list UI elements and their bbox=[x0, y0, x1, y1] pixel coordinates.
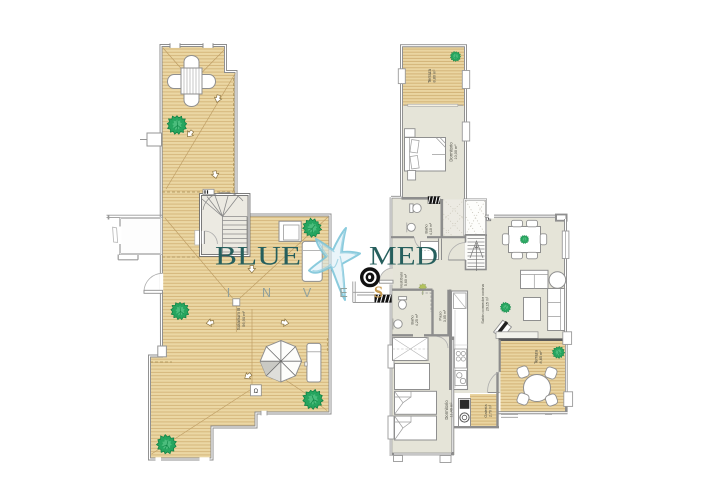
svg-text:V: V bbox=[303, 286, 312, 300]
svg-text:5,60 m²: 5,60 m² bbox=[404, 273, 408, 286]
svg-text:3,05 m²: 3,05 m² bbox=[443, 309, 447, 322]
svg-text:11,40 m²: 11,40 m² bbox=[450, 402, 454, 417]
svg-text:Ω: Ω bbox=[254, 389, 259, 395]
svg-text:29,15 m²: 29,15 m² bbox=[485, 296, 489, 311]
svg-text:Terraza: Terraza bbox=[427, 68, 432, 83]
svg-text:Salón comedor cocina: Salón comedor cocina bbox=[480, 283, 485, 323]
svg-text:4,25 m²: 4,25 m² bbox=[415, 313, 419, 326]
svg-text:8,85 m²: 8,85 m² bbox=[539, 350, 543, 364]
svg-text:Dormitorio: Dormitorio bbox=[449, 142, 454, 162]
svg-text:Dormitorio: Dormitorio bbox=[444, 400, 449, 420]
svg-text:Terraza: Terraza bbox=[534, 349, 539, 364]
svg-text:BLUE: BLUE bbox=[215, 242, 301, 271]
svg-text:56,90 m²: 56,90 m² bbox=[241, 310, 246, 326]
svg-text:8,80 m²: 8,80 m² bbox=[433, 69, 437, 83]
svg-text:Paso: Paso bbox=[438, 311, 443, 321]
svg-text:N: N bbox=[262, 286, 271, 300]
svg-text:E: E bbox=[339, 286, 347, 300]
svg-text:4,10 m²: 4,10 m² bbox=[429, 222, 433, 235]
svg-text:10,00 m²: 10,00 m² bbox=[454, 144, 458, 160]
svg-text:I: I bbox=[227, 286, 230, 300]
svg-text:Vestíbulo: Vestíbulo bbox=[399, 271, 404, 288]
svg-text:Galería: Galería bbox=[483, 404, 488, 418]
svg-text:Baño: Baño bbox=[424, 224, 429, 234]
svg-text:Baño: Baño bbox=[410, 315, 415, 325]
svg-text:MED: MED bbox=[369, 242, 438, 271]
svg-text:2,70 m²: 2,70 m² bbox=[488, 404, 492, 417]
